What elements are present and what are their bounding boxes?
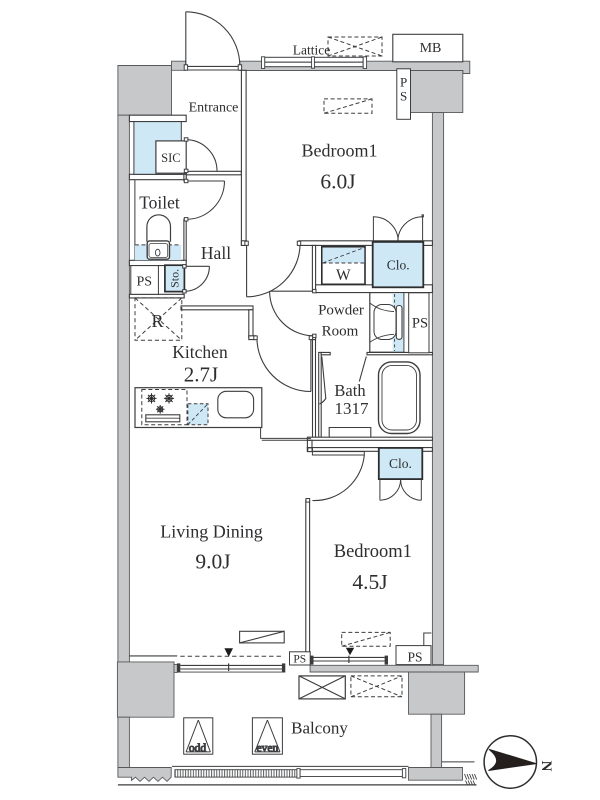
svg-text:PS: PS bbox=[412, 316, 428, 332]
svg-text:N: N bbox=[538, 761, 554, 772]
svg-text:W: W bbox=[336, 267, 351, 284]
svg-text:Bedroom1: Bedroom1 bbox=[334, 542, 412, 562]
svg-text:Clo.: Clo. bbox=[389, 456, 412, 471]
svg-text:Powder: Powder bbox=[318, 303, 364, 319]
svg-text:Bedroom1: Bedroom1 bbox=[302, 141, 378, 161]
svg-text:PS: PS bbox=[293, 653, 306, 665]
svg-text:Toilet: Toilet bbox=[139, 193, 180, 213]
svg-text:6.0J: 6.0J bbox=[320, 170, 355, 194]
svg-text:Hall: Hall bbox=[201, 243, 231, 263]
svg-text:4.5J: 4.5J bbox=[352, 570, 387, 594]
svg-text:Living Dining: Living Dining bbox=[160, 521, 263, 541]
svg-text:PS: PS bbox=[137, 274, 153, 289]
svg-text:SIC: SIC bbox=[161, 151, 180, 165]
svg-text:Entrance: Entrance bbox=[189, 100, 239, 115]
svg-text:R: R bbox=[151, 311, 163, 331]
svg-text:Clo.: Clo. bbox=[387, 257, 410, 272]
svg-text:9.0J: 9.0J bbox=[195, 550, 230, 574]
svg-text:P: P bbox=[400, 74, 407, 89]
svg-text:Bath: Bath bbox=[334, 381, 366, 400]
svg-text:Lattice: Lattice bbox=[293, 43, 330, 58]
svg-text:Kitchen: Kitchen bbox=[172, 342, 228, 362]
svg-text:Sto.: Sto. bbox=[167, 269, 181, 288]
svg-text:1317: 1317 bbox=[335, 399, 370, 418]
svg-text:S: S bbox=[400, 89, 407, 104]
svg-text:2.7J: 2.7J bbox=[184, 362, 218, 386]
svg-text:MB: MB bbox=[420, 41, 442, 56]
svg-text:Room: Room bbox=[322, 324, 359, 340]
svg-text:Balcony: Balcony bbox=[291, 718, 348, 737]
svg-text:odd: odd bbox=[189, 743, 207, 755]
svg-text:even: even bbox=[257, 743, 279, 755]
svg-text:PS: PS bbox=[407, 650, 422, 665]
